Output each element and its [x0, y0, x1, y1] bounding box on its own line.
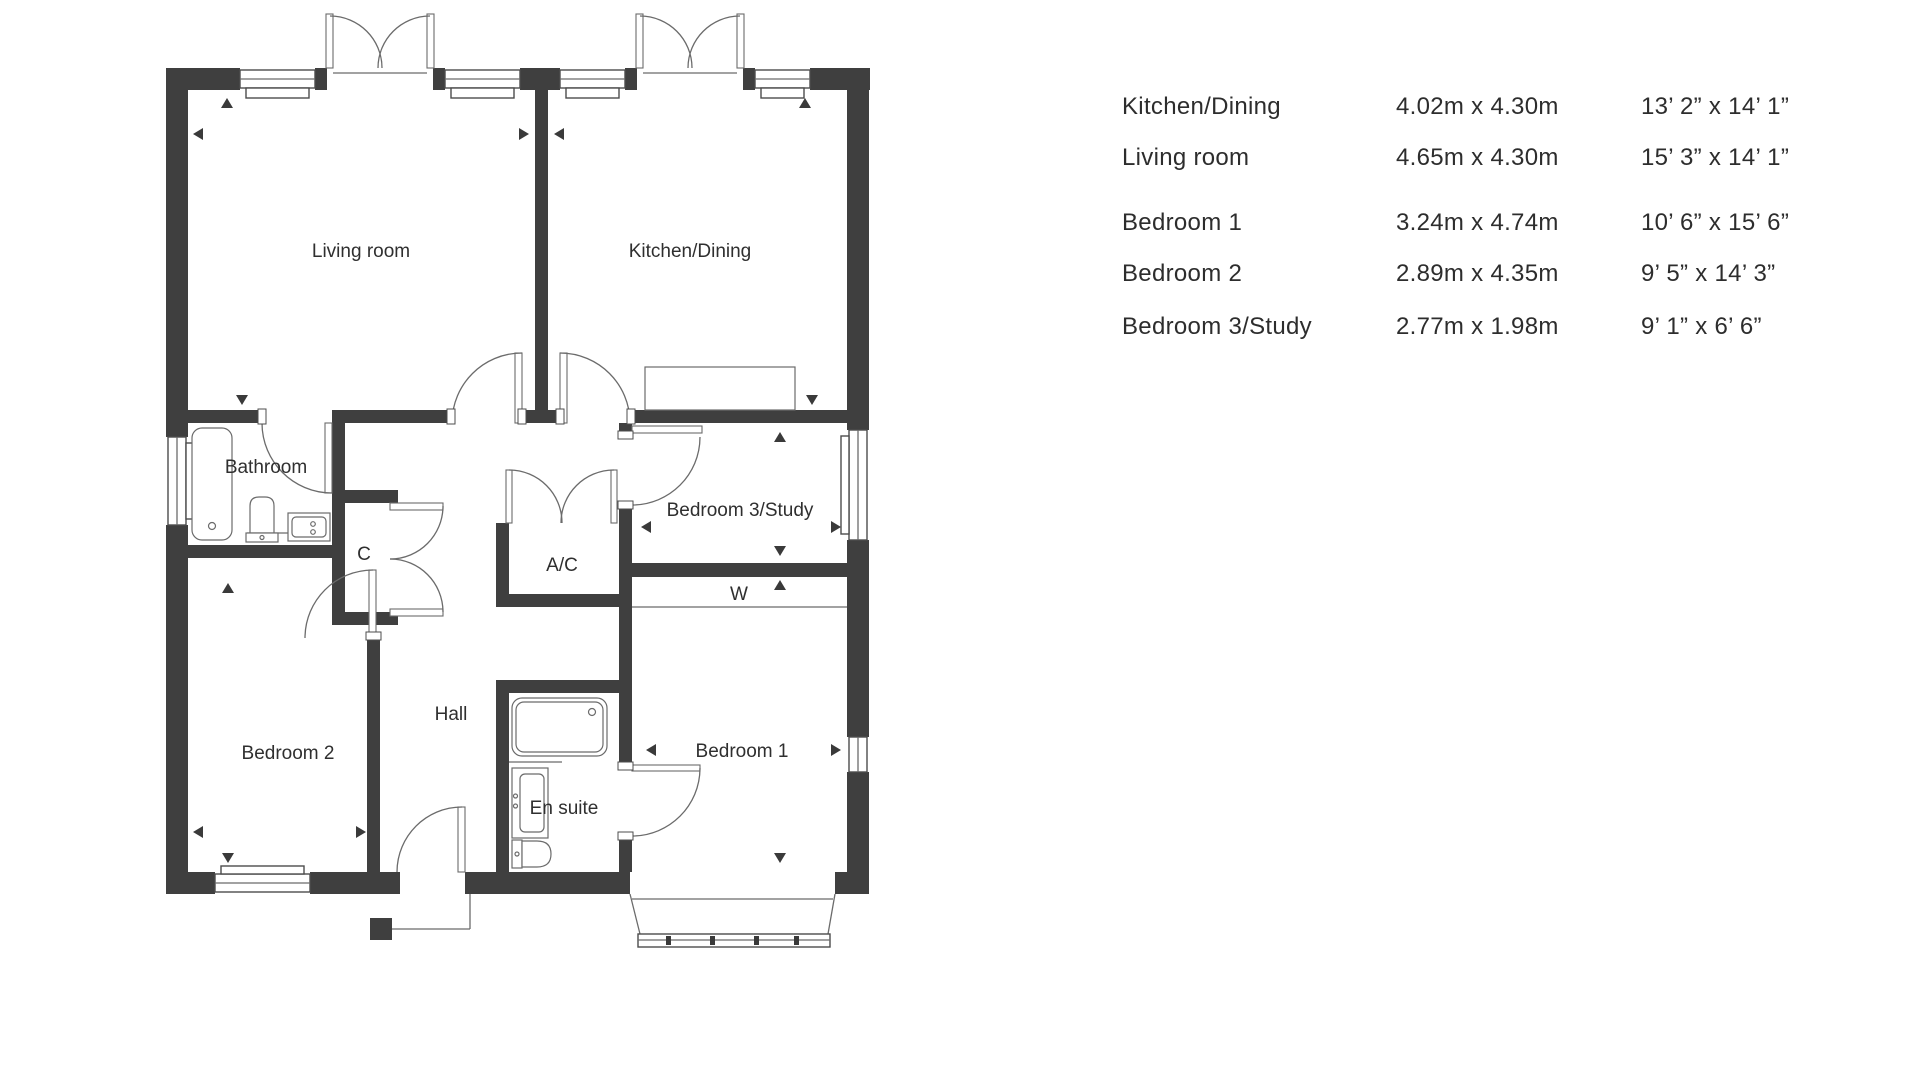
- room-label-en-suite: En suite: [530, 798, 599, 819]
- metric-dimensions: 4.65m x 4.30m: [1396, 144, 1559, 172]
- window-sill: [841, 436, 849, 534]
- room-label-kitchen-dining: Kitchen/Dining: [629, 241, 752, 262]
- window-sill: [761, 88, 804, 98]
- metric-dimensions: 2.89m x 4.35m: [1396, 260, 1559, 288]
- room-name: Bedroom 3/Study: [1122, 313, 1312, 341]
- room-label-ac: A/C: [546, 555, 578, 576]
- imperial-dimensions: 13’ 2” x 14’ 1”: [1641, 93, 1789, 121]
- kitchen-counter: [645, 367, 795, 410]
- room-label-bedroom3-study: Bedroom 3/Study: [667, 500, 814, 521]
- room-label-bedroom2: Bedroom 2: [242, 743, 335, 764]
- window-sill: [451, 88, 514, 98]
- room-name: Living room: [1122, 144, 1249, 172]
- room-name: Bedroom 1: [1122, 209, 1242, 237]
- imperial-dimensions: 15’ 3” x 14’ 1”: [1641, 144, 1789, 172]
- room-label-wardrobe: W: [730, 584, 748, 605]
- room-label-hall: Hall: [435, 704, 468, 725]
- imperial-dimensions: 9’ 1” x 6’ 6”: [1641, 313, 1762, 341]
- fixtures: [192, 367, 847, 868]
- metric-dimensions: 3.24m x 4.74m: [1396, 209, 1559, 237]
- metric-dimensions: 4.02m x 4.30m: [1396, 93, 1559, 121]
- toilet: [250, 497, 274, 533]
- room-name: Kitchen/Dining: [1122, 93, 1281, 121]
- room-label-closet: C: [357, 544, 371, 565]
- bay-window: [630, 894, 835, 947]
- dimensions-table: Kitchen/Dining 4.02m x 4.30m 13’ 2” x 14…: [1122, 0, 1882, 400]
- imperial-dimensions: 9’ 5” x 14’ 3”: [1641, 260, 1775, 288]
- room-label-living-room: Living room: [312, 241, 410, 262]
- page: Living room Kitchen/Dining Bathroom Bedr…: [0, 0, 1920, 1080]
- metric-dimensions: 2.77m x 1.98m: [1396, 313, 1559, 341]
- window-sill: [221, 866, 304, 874]
- room-name: Bedroom 2: [1122, 260, 1242, 288]
- window-sill: [566, 88, 619, 98]
- porch: [392, 894, 470, 929]
- imperial-dimensions: 10’ 6” x 15’ 6”: [1641, 209, 1789, 237]
- room-label-bedroom1: Bedroom 1: [696, 741, 789, 762]
- room-label-bathroom: Bathroom: [225, 457, 307, 478]
- window-sill: [246, 88, 309, 98]
